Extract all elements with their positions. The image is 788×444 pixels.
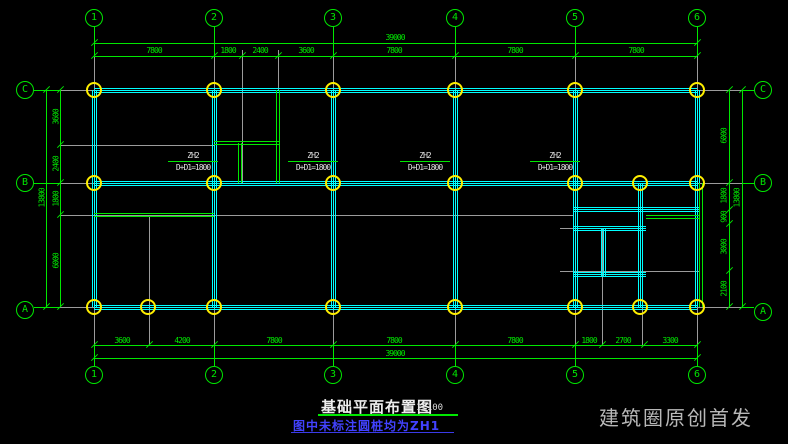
pile-label-name: ZH2 [168,151,218,160]
dim-text: 7800 [507,46,522,55]
pile-symbol [447,299,463,315]
pile-symbol [325,175,341,191]
extension-line [60,145,214,146]
pile-label-leader [288,161,338,162]
axis-stem [333,27,334,56]
axis-stem [34,183,60,184]
dim-text: 4200 [174,336,189,345]
pile-symbol [689,175,705,191]
pile-symbol [689,299,705,315]
dim-text: 7800 [628,46,643,55]
axis-stem [214,27,215,56]
axis-stem [742,183,754,184]
axis-bubble-bottom: 5 [566,366,584,384]
ground-beam [238,143,242,183]
dim-text: 1800 [220,46,235,55]
axis-stem [742,307,754,308]
extension-line [242,50,243,183]
axis-stem [575,27,576,56]
axis-stem [333,345,334,366]
pile-label-spec: D+D1=1800 [168,163,218,172]
dim-text: 3600 [298,46,313,55]
pile-symbol [86,299,102,315]
foundation-beam [601,228,606,277]
axis-bubble-top: 2 [205,9,223,27]
pile-symbol [206,175,222,191]
dim-text: 7800 [386,46,401,55]
pile-symbol [325,82,341,98]
dim-text: 2400 [252,46,267,55]
pile-symbol [689,82,705,98]
foundation-beam [453,90,458,307]
pile-symbol [447,82,463,98]
pile-label: ZH2 D+D1=1800 [530,151,580,172]
cad-foundation-plan: 39000 7800 1800 2400 3600 7800 7800 7800… [0,0,788,444]
foundation-beam [94,305,697,310]
ground-beam [276,90,280,183]
dim-text: 900 [720,211,729,222]
axis-bubble-right: C [754,81,772,99]
pile-label: ZH2 D+D1=1800 [288,151,338,172]
axis-bubble-left: A [16,301,34,319]
pile-label-spec: D+D1=1800 [530,163,580,172]
dim-text: 1800 [52,191,61,206]
axis-bubble-left: B [16,174,34,192]
drawing-scale: 1:100 [416,403,443,413]
axis-stem [742,90,754,91]
axis-stem [455,27,456,56]
pile-label-leader [530,161,580,162]
dim-text: 7800 [507,336,522,345]
pile-symbol [567,299,583,315]
axis-stem [575,345,576,366]
axis-bubble-top: 6 [688,9,706,27]
pile-symbol [86,175,102,191]
pile-label-leader [400,161,450,162]
axis-stem [214,345,215,366]
foundation-beam [638,183,643,307]
pile-symbol [567,82,583,98]
axis-stem [34,90,60,91]
axis-stem [455,345,456,366]
axis-bubble-bottom: 4 [446,366,464,384]
watermark: 建筑圈原创首发 [599,402,753,431]
axis-bubble-top: 5 [566,9,584,27]
dim-text: 13800 [733,188,742,207]
foundation-beam [94,181,697,186]
pile-symbol [567,175,583,191]
note-underline [291,432,454,433]
dim-text: 7800 [146,46,161,55]
dim-text: 2400 [52,156,61,171]
pile-symbol [206,299,222,315]
dim-line [94,358,697,359]
dim-line [94,43,697,44]
pile-label-name: ZH2 [288,151,338,160]
dim-text: 1800 [720,188,729,203]
axis-bubble-bottom: 1 [85,366,103,384]
dim-text: 2100 [720,281,729,296]
ground-beam [94,213,214,217]
axis-bubble-right: B [754,174,772,192]
foundation-beam [573,272,646,277]
pile-label: ZH2 D+D1=1800 [168,151,218,172]
dim-text: 13800 [38,188,47,207]
ground-beam [646,215,700,219]
foundation-beam [94,88,697,93]
dim-line [94,345,697,346]
dim-text: 2700 [615,336,630,345]
dim-text: 3600 [52,109,61,124]
dim-text: 39000 [385,33,404,42]
axis-bubble-top: 4 [446,9,464,27]
axis-bubble-left: C [16,81,34,99]
pile-label-leader [168,161,218,162]
extension-line [149,215,150,345]
axis-bubble-top: 3 [324,9,342,27]
foundation-beam [573,90,578,307]
pile-label-name: ZH2 [530,151,580,160]
pile-symbol [632,299,648,315]
dim-text: 39000 [385,349,404,358]
dim-text: 1800 [581,336,596,345]
dim-text: 3000 [720,239,729,254]
foundation-beam [212,90,217,307]
dim-text: 3600 [114,336,129,345]
dim-text: 3300 [662,336,677,345]
pile-label-spec: D+D1=1800 [288,163,338,172]
axis-bubble-bottom: 3 [324,366,342,384]
axis-bubble-bottom: 2 [205,366,223,384]
dim-text: 6000 [720,128,729,143]
pile-symbol [206,82,222,98]
axis-bubble-top: 1 [85,9,103,27]
foundation-beam [92,90,97,307]
axis-bubble-right: A [754,303,772,321]
dim-text: 7800 [266,336,281,345]
ground-beam [699,183,703,307]
ground-beam [214,141,280,145]
pile-label-spec: D+D1=1800 [400,163,450,172]
dim-line [94,56,697,57]
pile-symbol [447,175,463,191]
pile-label-name: ZH2 [400,151,450,160]
dim-text: 6000 [52,253,61,268]
dim-line [729,90,730,307]
pile-label: ZH2 D+D1=1800 [400,151,450,172]
foundation-beam [573,207,700,212]
pile-symbol [325,299,341,315]
foundation-beam [331,90,336,307]
foundation-beam [573,226,646,231]
pile-symbol [632,175,648,191]
pile-symbol [86,82,102,98]
dim-text: 7800 [386,336,401,345]
axis-stem [34,307,60,308]
dim-line [742,90,743,307]
pile-symbol [140,299,156,315]
title-underline [318,414,458,416]
axis-bubble-bottom: 6 [688,366,706,384]
